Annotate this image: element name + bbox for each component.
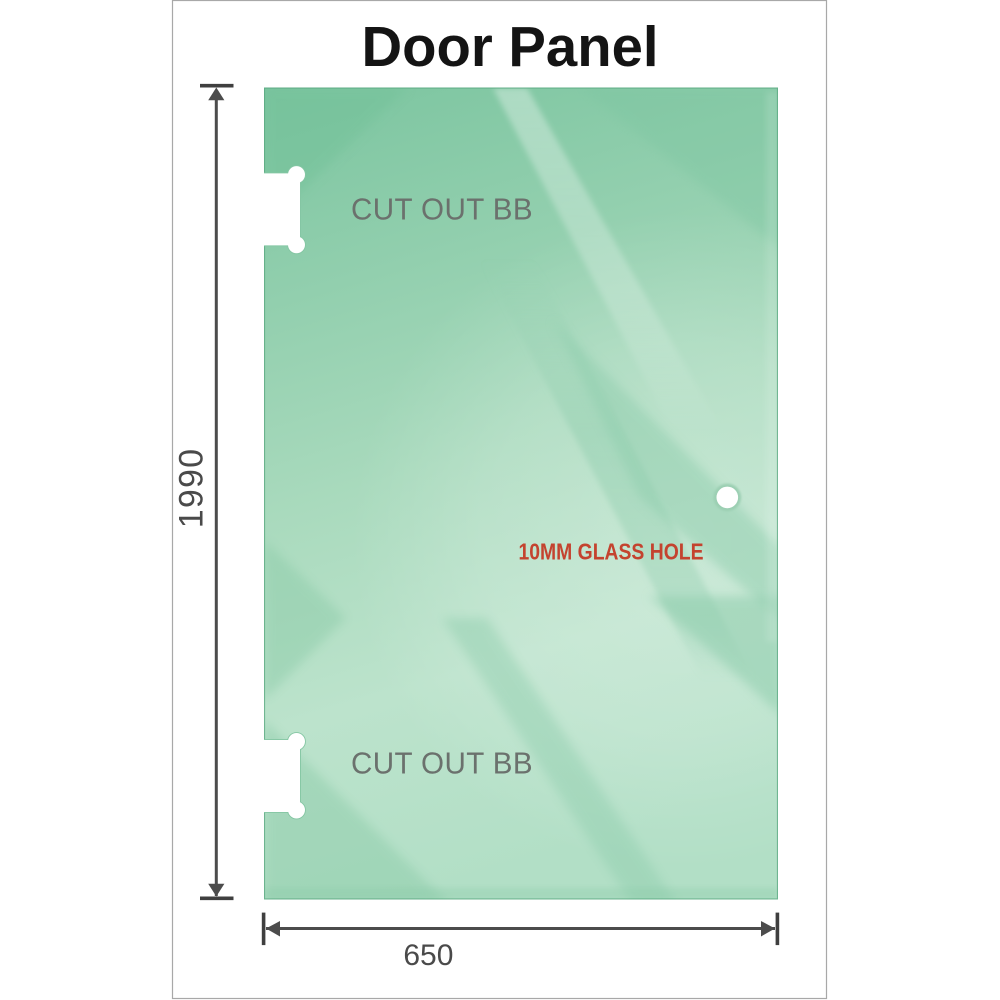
svg-text:Door Panel: Door Panel (362, 15, 659, 78)
svg-text:1990: 1990 (173, 448, 211, 528)
svg-text:CUT OUT BB: CUT OUT BB (351, 746, 533, 781)
svg-text:650: 650 (403, 939, 453, 972)
svg-text:CUT OUT BB: CUT OUT BB (351, 192, 533, 227)
svg-text:10MM GLASS HOLE: 10MM GLASS HOLE (519, 539, 704, 565)
